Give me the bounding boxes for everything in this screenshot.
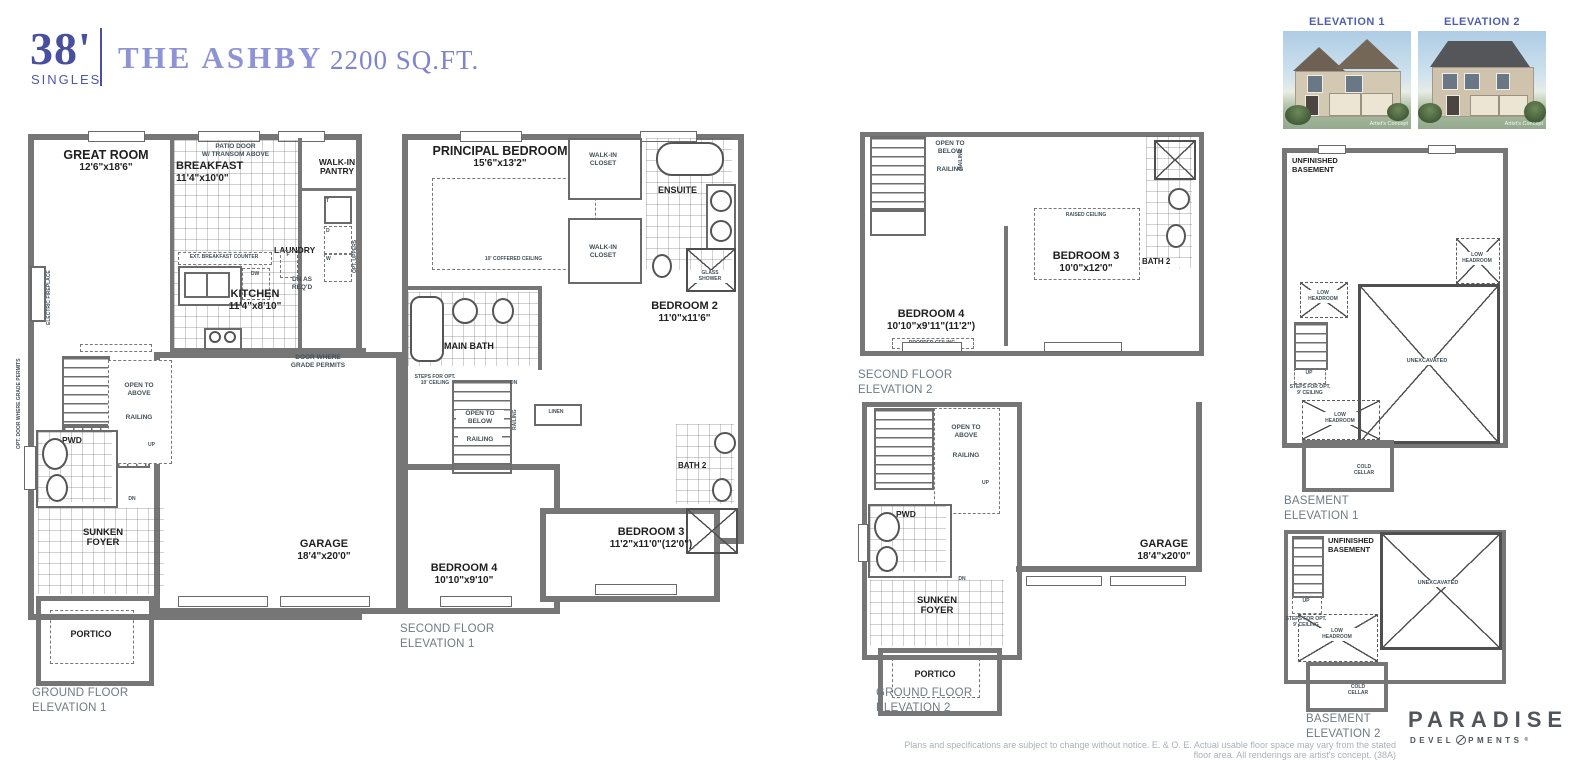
plan-second-floor-elev1: PRINCIPAL BEDROOM 15'6"x13'2" 10' COFFER… xyxy=(400,128,750,648)
plan-caption: SECOND FLOOR ELEVATION 2 xyxy=(858,368,952,398)
house-roof xyxy=(1335,39,1399,69)
railing-v-note: RAILING xyxy=(512,398,518,442)
sink xyxy=(874,512,900,542)
up-note: UP xyxy=(982,480,1002,486)
house-window xyxy=(1496,73,1510,90)
unexcavated-label: UNEXCAVATED xyxy=(1392,358,1462,365)
header-divider xyxy=(100,28,102,86)
house-window xyxy=(1442,73,1458,90)
window xyxy=(88,131,145,142)
bedroom4-label: BEDROOM 4 10'10"x9'10" xyxy=(408,562,520,586)
principal-bedroom-label: PRINCIPAL BEDROOM 15'6"x13'2" xyxy=(420,144,580,170)
unfinished-basement-label: UNFINISHED BASEMENT xyxy=(1292,156,1352,174)
railing-note: RAILING xyxy=(926,166,974,174)
dryer-letter: D xyxy=(326,228,336,234)
square-footage: 2200 SQ.FT. xyxy=(330,45,479,76)
sink xyxy=(1168,188,1190,210)
open-to-below-note: OPEN TO BELOW xyxy=(924,140,976,156)
bush xyxy=(1418,103,1442,123)
garage-door xyxy=(1329,93,1361,116)
bathtub xyxy=(410,296,444,362)
pwd-label: PWD xyxy=(896,510,942,519)
wall xyxy=(402,286,542,290)
railing-note: RAILING xyxy=(116,414,162,422)
low-headroom-label: LOW HEADROOM xyxy=(1318,628,1356,641)
garage-door-opening xyxy=(280,596,370,607)
garage-door-opening xyxy=(178,596,268,607)
low-headroom-label: LOW HEADROOM xyxy=(1460,252,1494,265)
exterior-wall xyxy=(402,464,560,614)
room-dim: 12'6"x18'6" xyxy=(46,162,166,174)
plan-caption: SECOND FLOOR ELEVATION 1 xyxy=(400,622,494,652)
globe-icon xyxy=(1456,735,1466,745)
plan-ground-floor-elev1: GREAT ROOM 12'6"x18'6" PATIO DOOR W/ TRA… xyxy=(28,130,428,715)
toilet xyxy=(876,546,898,572)
brand-name: PARADISE xyxy=(1408,707,1568,733)
brand-sub-right: PMENTS xyxy=(1468,736,1522,745)
opt-door-grade-note: OPT. DOOR WHERE GRADE PERMITS xyxy=(16,358,22,450)
garage-door-opening xyxy=(1110,576,1186,586)
bush xyxy=(1285,105,1311,125)
stairs xyxy=(62,356,110,426)
main-bath-label: MAIN BATH xyxy=(444,342,504,352)
sink xyxy=(42,438,68,470)
stairs xyxy=(870,136,926,210)
ext-counter-note: EXT. BREAKFAST COUNTER xyxy=(178,254,270,260)
window xyxy=(1428,145,1456,154)
garage-front-wall xyxy=(1016,566,1202,572)
room-name: GREAT ROOM xyxy=(46,148,166,162)
frontage-number: 38' xyxy=(30,22,92,75)
stairs xyxy=(1294,322,1328,370)
bedroom3-label: BEDROOM 3 11'2"x11'0"(12'0") xyxy=(586,526,716,550)
open-to-above-note: OPEN TO ABOVE xyxy=(938,424,994,440)
house-window xyxy=(1345,75,1363,93)
model-name: THE ASHBY xyxy=(118,40,323,76)
bath2-label: BATH 2 xyxy=(678,462,722,471)
cold-cellar-label: COLD CELLAR xyxy=(1342,684,1374,697)
wall xyxy=(170,348,366,352)
portico-label: PORTICO xyxy=(56,630,126,640)
bathtub xyxy=(656,142,724,176)
unexcavated-label: UNEXCAVATED xyxy=(1402,580,1474,587)
opt-uppers-note: OPT. UPPERS xyxy=(352,226,358,286)
bedroom4-label: BEDROOM 4 10'10"x9'11"(11'2") xyxy=(868,308,994,332)
patio-door-note: PATIO DOOR W/ TRANSOM ABOVE xyxy=(188,143,283,159)
dw-letter: DW xyxy=(242,271,268,277)
window xyxy=(858,524,868,562)
wall xyxy=(538,286,542,370)
bush xyxy=(1387,103,1409,121)
fireplace-note: ELECTRIC FIREPLACE xyxy=(46,258,52,338)
railing-note: RAILING xyxy=(458,436,502,444)
door-grade-note: DOOR WHERE GRADE PERMITS xyxy=(268,354,368,370)
window xyxy=(440,596,512,607)
toilet xyxy=(492,298,514,324)
product-type: SINGLES xyxy=(31,72,101,87)
artist-concept-credit: Artist's Concept xyxy=(1370,121,1408,127)
up-note: UP xyxy=(1298,598,1314,604)
tub-letter: T xyxy=(326,198,336,204)
portico-label: PORTICO xyxy=(900,670,970,680)
window xyxy=(1044,342,1122,352)
bath2-label: BATH 2 xyxy=(1142,258,1186,267)
shower xyxy=(1154,140,1196,180)
stair-landing xyxy=(870,210,926,236)
wall xyxy=(298,138,302,350)
garage-label: GARAGE 18'4"x20'0" xyxy=(1116,538,1212,562)
low-headroom-label: LOW HEADROOM xyxy=(1322,412,1358,425)
electric-fireplace xyxy=(30,266,46,322)
breakfast-label: BREAKFAST 11'4"x10'0" xyxy=(176,160,286,184)
plan-ground-floor-elev2: OPEN TO ABOVE RAILING UP PWD DN SUNKEN F… xyxy=(858,398,1210,713)
stairs xyxy=(1292,536,1324,598)
window xyxy=(1318,145,1346,154)
wall xyxy=(1004,226,1008,346)
washer-letter: W xyxy=(326,256,336,262)
bedroom2-label: BEDROOM 2 11'0"x11'6" xyxy=(632,300,737,324)
brand-subtitle: DEVEL PMENTS ® xyxy=(1410,735,1532,745)
toilet xyxy=(652,254,672,278)
plan-basement-elev1: UNFINISHED BASEMENT UNEXCAVATED LOW HEAD… xyxy=(1278,142,1518,522)
pwd-label: PWD xyxy=(62,436,106,445)
bedroom3-label: BEDROOM 3 10'0"x12'0" xyxy=(1030,250,1142,274)
wic-label: WALK-IN CLOSET xyxy=(572,152,634,168)
railing-note: RAILING xyxy=(940,452,992,460)
toilet xyxy=(712,478,732,502)
stairs xyxy=(452,380,512,474)
sunken-foyer-label: SUNKEN FOYER xyxy=(902,596,972,617)
sink xyxy=(710,220,732,242)
registered-mark: ® xyxy=(1525,737,1532,743)
wall xyxy=(170,138,174,350)
opening-dashed xyxy=(80,344,152,352)
burner xyxy=(209,331,221,343)
pantry-label: WALK-IN PANTRY xyxy=(314,158,360,177)
garage-wall xyxy=(154,352,402,614)
plan-caption: BASEMENT ELEVATION 2 xyxy=(1306,712,1381,742)
cold-cellar-label: COLD CELLAR xyxy=(1348,464,1380,477)
unexcavated-area xyxy=(1380,532,1502,650)
low-headroom-label: LOW HEADROOM xyxy=(1304,290,1342,303)
plan-caption: BASEMENT ELEVATION 1 xyxy=(1284,494,1359,524)
steps-opt-note: STEPS FOR OPT. 9' CEILING xyxy=(1284,384,1336,397)
house-window xyxy=(1307,75,1323,93)
open-to-below-note: OPEN TO BELOW xyxy=(456,410,504,426)
house-door xyxy=(1446,95,1460,116)
window xyxy=(902,342,962,352)
disclaimer-text: Plans and specifications are subject to … xyxy=(898,740,1396,760)
floorplan-sheet: 38' SINGLES THE ASHBY 2200 SQ.FT. ELEVAT… xyxy=(0,0,1590,781)
elevation2-rendering: Artist's Concept xyxy=(1418,31,1546,129)
raised-ceiling-note: RAISED CEILING xyxy=(1050,212,1122,218)
house-roof xyxy=(1430,41,1530,67)
plan-second-floor-elev2: OPEN TO BELOW RAILING RAILING BEDROOM 4 … xyxy=(858,126,1210,398)
elevation1-rendering: Artist's Concept xyxy=(1283,31,1411,129)
garage-door xyxy=(1470,95,1499,116)
garage-label: GARAGE 18'4"x20'0" xyxy=(268,538,380,562)
fridge-letter: F xyxy=(280,252,296,258)
linen-label: LINEN xyxy=(536,409,576,415)
open-to-above-note: OPEN TO ABOVE xyxy=(114,382,164,398)
brand-sub-left: DEVEL xyxy=(1410,736,1454,745)
sunken-foyer-label: SUNKEN FOYER xyxy=(68,528,138,549)
wall xyxy=(302,188,362,191)
window xyxy=(24,446,36,490)
great-room-label: GREAT ROOM 12'6"x18'6" xyxy=(46,148,166,174)
dn-note: DN xyxy=(510,380,530,386)
artist-concept-credit: Artist's Concept xyxy=(1505,121,1543,127)
sink xyxy=(714,432,736,454)
coffered-note: 10' COFFERED CEILING xyxy=(446,256,581,262)
toilet xyxy=(46,474,68,502)
wic-label: WALK-IN CLOSET xyxy=(572,244,634,260)
foyer-tile xyxy=(38,508,164,594)
elevation1-label: ELEVATION 1 xyxy=(1283,16,1411,28)
walk-in-closet xyxy=(568,138,642,200)
sink xyxy=(452,298,478,324)
plan-caption: GROUND FLOOR ELEVATION 2 xyxy=(876,686,972,716)
bush xyxy=(1524,101,1546,123)
window xyxy=(595,584,677,595)
dn-note: DN xyxy=(122,496,142,502)
kitchen-label: KITCHEN 11'4"x8'10" xyxy=(210,288,300,312)
up-note: UP xyxy=(148,442,168,448)
toilet xyxy=(1166,224,1186,248)
railing-v-note: RAILING xyxy=(958,138,964,182)
burner xyxy=(224,331,236,343)
stairs xyxy=(874,408,934,490)
house-window xyxy=(1464,73,1480,90)
plan-caption: GROUND FLOOR ELEVATION 1 xyxy=(32,686,128,716)
up-note: UP xyxy=(1300,370,1318,376)
sink xyxy=(710,190,732,212)
sink xyxy=(184,272,208,298)
window xyxy=(460,131,522,142)
garage-door-opening xyxy=(1026,576,1102,586)
elevation2-label: ELEVATION 2 xyxy=(1418,16,1546,28)
glass-shower-note: GLASS SHOWER xyxy=(692,270,728,283)
